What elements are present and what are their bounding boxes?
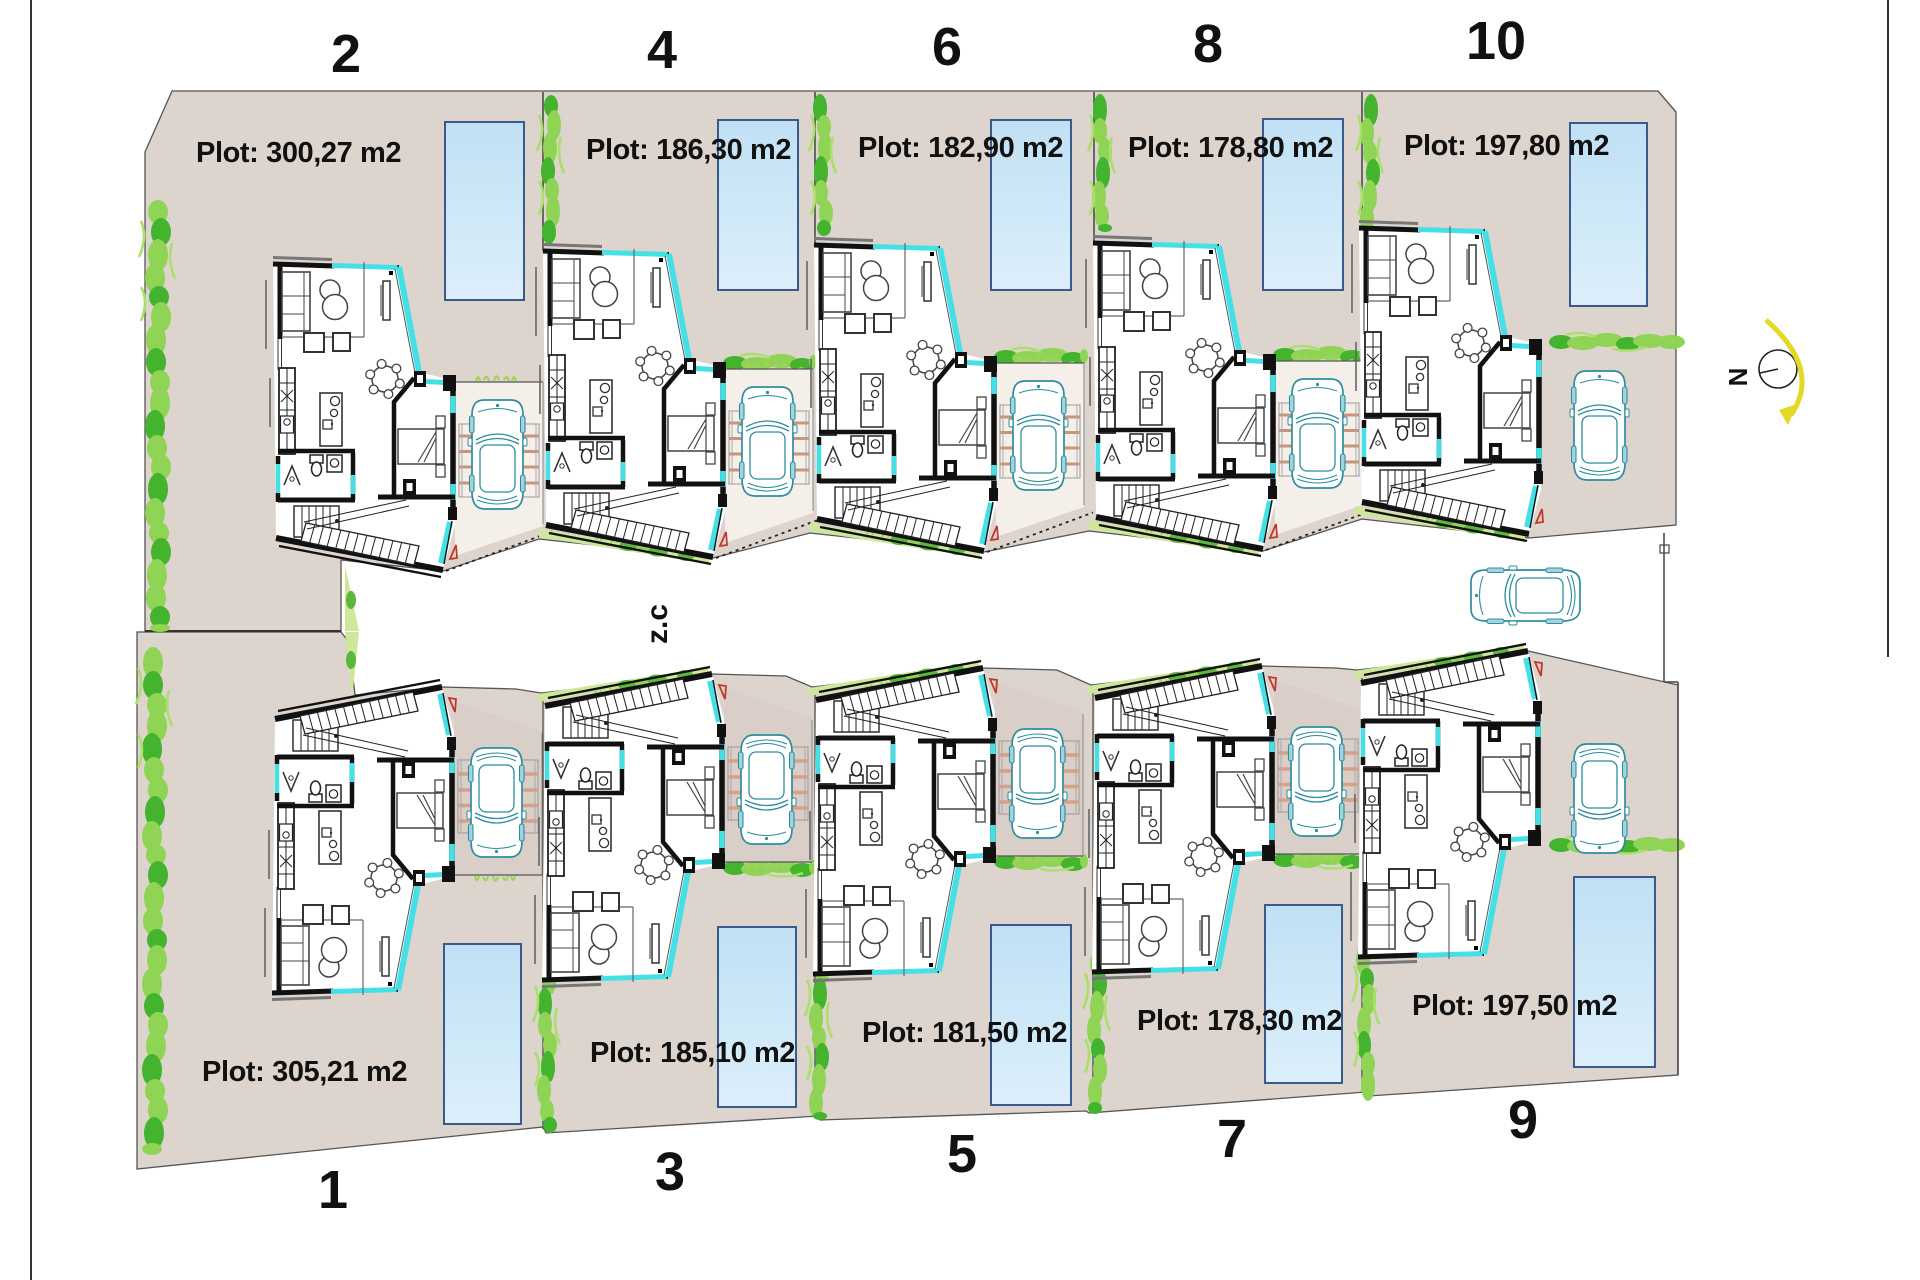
svg-text:Plot: 197,50 m2: Plot: 197,50 m2 bbox=[1412, 990, 1617, 1022]
svg-text:Plot: 181,50 m2: Plot: 181,50 m2 bbox=[862, 1017, 1067, 1049]
svg-text:Plot: 182,90 m2: Plot: 182,90 m2 bbox=[858, 132, 1063, 164]
svg-text:Plot: 186,30 m2: Plot: 186,30 m2 bbox=[586, 134, 791, 166]
svg-text:8: 8 bbox=[1193, 14, 1223, 74]
svg-text:Plot: 178,30 m2: Plot: 178,30 m2 bbox=[1137, 1005, 1342, 1037]
svg-text:Plot: 185,10 m2: Plot: 185,10 m2 bbox=[590, 1037, 795, 1069]
svg-text:7: 7 bbox=[1217, 1109, 1247, 1169]
svg-text:1: 1 bbox=[318, 1160, 348, 1220]
svg-text:5: 5 bbox=[947, 1124, 977, 1184]
svg-text:6: 6 bbox=[932, 17, 962, 77]
svg-text:9: 9 bbox=[1508, 1090, 1538, 1150]
svg-text:z.c: z.c bbox=[641, 604, 674, 644]
svg-text:Plot: 305,21 m2: Plot: 305,21 m2 bbox=[202, 1056, 407, 1088]
svg-text:4: 4 bbox=[647, 20, 677, 80]
svg-text:Plot: 197,80 m2: Plot: 197,80 m2 bbox=[1404, 130, 1609, 162]
svg-text:10: 10 bbox=[1466, 11, 1526, 71]
svg-text:Plot: 178,80 m2: Plot: 178,80 m2 bbox=[1128, 132, 1333, 164]
svg-text:3: 3 bbox=[655, 1142, 685, 1202]
svg-text:2: 2 bbox=[331, 24, 361, 84]
svg-text:Plot: 300,27 m2: Plot: 300,27 m2 bbox=[196, 137, 401, 169]
svg-text:N: N bbox=[1723, 368, 1753, 387]
